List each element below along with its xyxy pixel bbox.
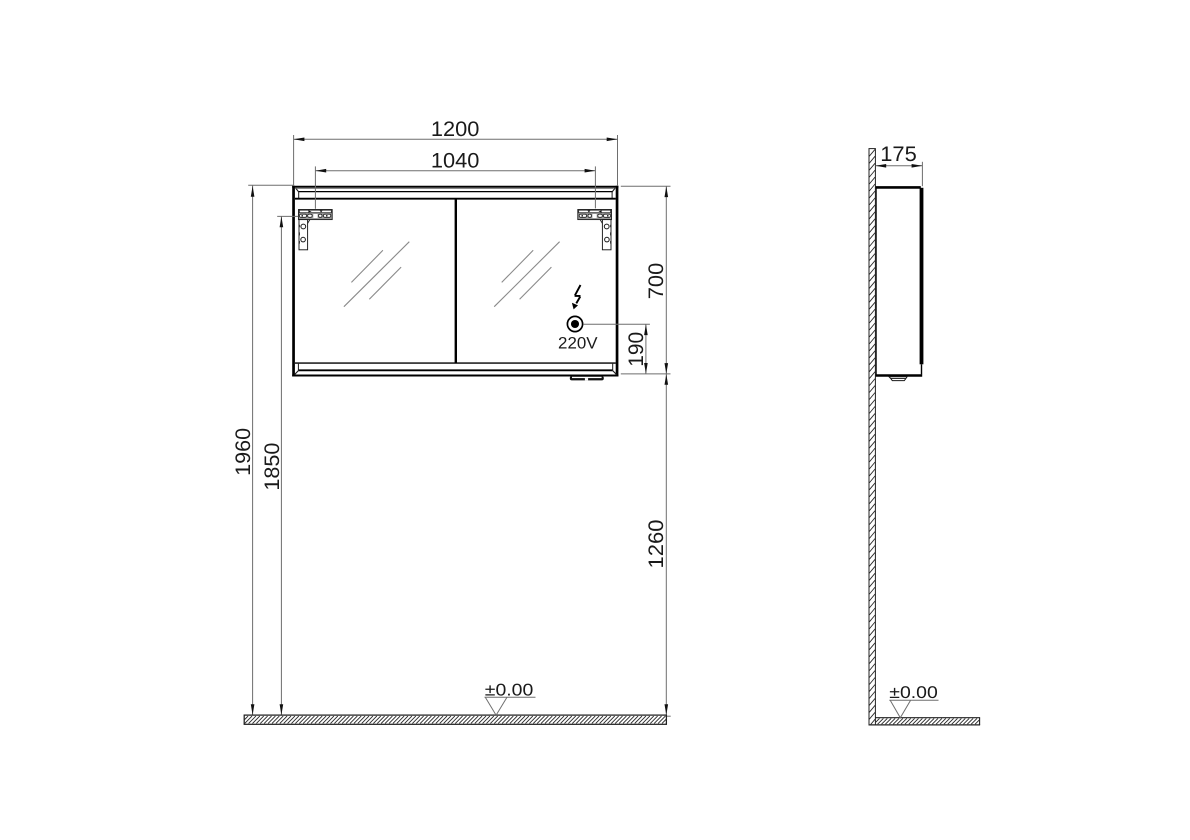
svg-text:1040: 1040: [431, 150, 480, 173]
svg-text:175: 175: [880, 143, 917, 166]
svg-text:700: 700: [645, 263, 668, 300]
svg-text:±0.00: ±0.00: [485, 680, 534, 699]
svg-text:220V: 220V: [558, 334, 598, 352]
svg-text:1960: 1960: [232, 428, 255, 476]
svg-text:1200: 1200: [431, 118, 480, 141]
svg-text:1850: 1850: [261, 443, 284, 491]
svg-text:1260: 1260: [645, 520, 668, 569]
svg-text:±0.00: ±0.00: [889, 683, 938, 702]
svg-text:190: 190: [625, 332, 648, 367]
